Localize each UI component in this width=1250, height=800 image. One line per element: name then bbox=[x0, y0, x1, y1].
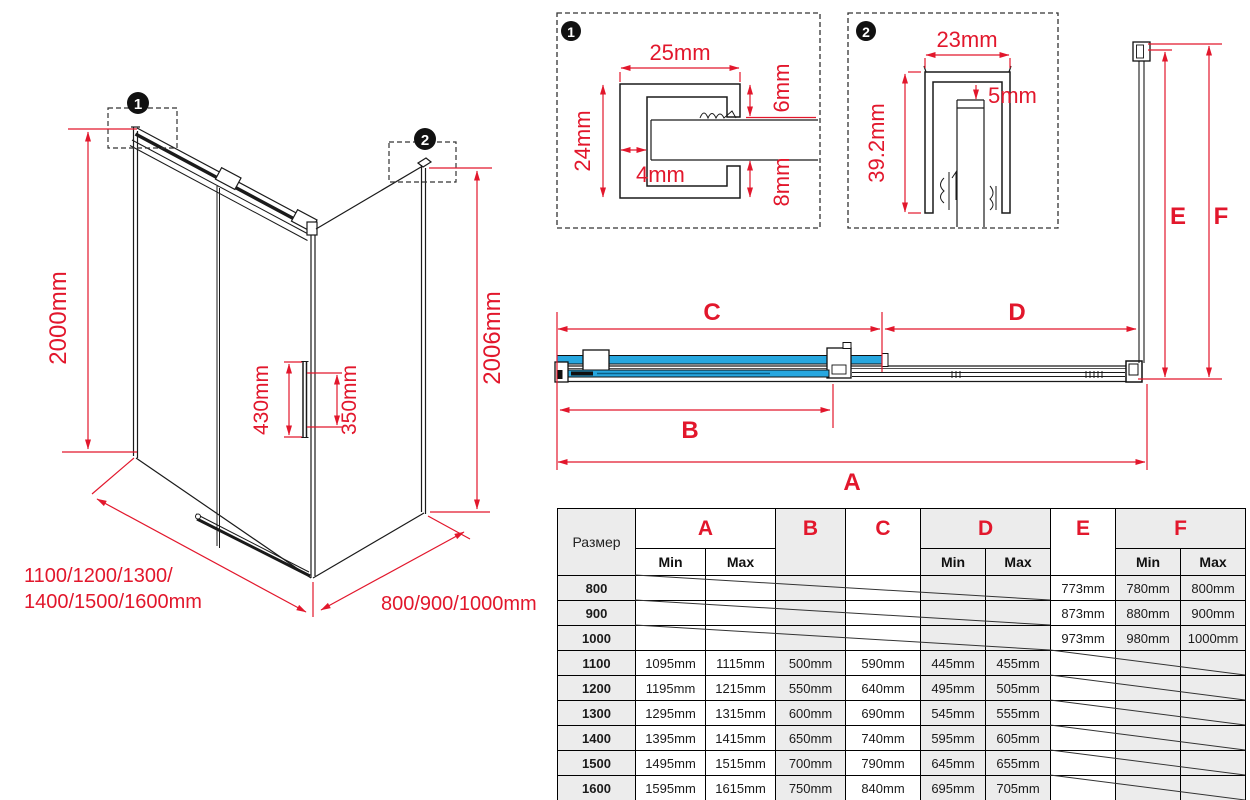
callout-2: 2 bbox=[389, 128, 456, 182]
header-f-max: Max bbox=[1181, 549, 1246, 576]
cell-f-max bbox=[1181, 751, 1246, 776]
door-end-cap bbox=[882, 354, 888, 367]
cell-a-max: 1315mm bbox=[706, 701, 776, 726]
row-size: 800 bbox=[558, 576, 636, 601]
row-size: 1600 bbox=[558, 776, 636, 800]
table-row: 1500 1495mm 1515mm 700mm 790mm 645mm 655… bbox=[558, 751, 1246, 776]
table-row: 1400 1395mm 1415mm 650mm 740mm 595mm 605… bbox=[558, 726, 1246, 751]
plan-dim-b: B bbox=[681, 417, 698, 444]
header-a-max: Max bbox=[706, 549, 776, 576]
cell-b bbox=[776, 601, 846, 626]
cell-a-min bbox=[636, 626, 706, 651]
spec-table: Размер A B C D E F Min Max Min Max Min M… bbox=[557, 508, 1246, 800]
cell-f-max: 800mm bbox=[1181, 576, 1246, 601]
plan-view: C D B A E F bbox=[555, 42, 1228, 496]
table-row: 1000 973mm 980mm 1000mm bbox=[558, 626, 1246, 651]
cell-d-max: 555mm bbox=[986, 701, 1051, 726]
header-d-min: Min bbox=[921, 549, 986, 576]
dim-handle-total: 430mm bbox=[250, 365, 273, 435]
plan-dim-e: E bbox=[1170, 203, 1186, 230]
dim-handle-holes: 350mm bbox=[338, 365, 361, 435]
header-col-a: A bbox=[636, 509, 776, 549]
detail-1-width: 25mm bbox=[649, 40, 710, 65]
cell-f-max: 1000mm bbox=[1181, 626, 1246, 651]
roller-block-left bbox=[583, 350, 609, 372]
shower-enclosure-spec-sheet: 1 2 2000mm 20 bbox=[0, 0, 1250, 800]
cell-e bbox=[1051, 651, 1116, 676]
cell-f-max bbox=[1181, 651, 1246, 676]
cell-b: 500mm bbox=[776, 651, 846, 676]
cell-b: 550mm bbox=[776, 676, 846, 701]
callout-1-number: 1 bbox=[134, 96, 142, 113]
cell-e: 773mm bbox=[1051, 576, 1116, 601]
roller-block-right bbox=[827, 348, 851, 378]
cell-a-min: 1195mm bbox=[636, 676, 706, 701]
cell-d-max: 655mm bbox=[986, 751, 1051, 776]
cell-a-max: 1115mm bbox=[706, 651, 776, 676]
plan-dim-f: F bbox=[1214, 203, 1229, 230]
cell-a-max: 1215mm bbox=[706, 676, 776, 701]
cell-e bbox=[1051, 726, 1116, 751]
callout-2-number: 2 bbox=[421, 132, 429, 149]
plan-dim-c: C bbox=[703, 299, 720, 326]
cell-b: 650mm bbox=[776, 726, 846, 751]
cell-d-min: 495mm bbox=[921, 676, 986, 701]
cell-f-max bbox=[1181, 676, 1246, 701]
row-size: 1100 bbox=[558, 651, 636, 676]
cell-e bbox=[1051, 701, 1116, 726]
cell-a-min bbox=[636, 601, 706, 626]
dim-width-line2: 1400/1500/1600mm bbox=[24, 591, 202, 613]
row-size: 1400 bbox=[558, 726, 636, 751]
cell-e: 873mm bbox=[1051, 601, 1116, 626]
cell-b bbox=[776, 626, 846, 651]
detail-2-height: 39.2mm bbox=[864, 103, 889, 182]
cell-a-min: 1395mm bbox=[636, 726, 706, 751]
cell-d-min bbox=[921, 626, 986, 651]
cell-a-max bbox=[706, 601, 776, 626]
table-row: 1200 1195mm 1215mm 550mm 640mm 495mm 505… bbox=[558, 676, 1246, 701]
dim-depth: 800/900/1000mm bbox=[381, 593, 537, 615]
cell-d-max: 705mm bbox=[986, 776, 1051, 800]
cell-a-min: 1295mm bbox=[636, 701, 706, 726]
cell-c: 840mm bbox=[846, 776, 921, 800]
detail-1-wall: 4mm bbox=[636, 162, 685, 187]
isometric-view bbox=[130, 127, 431, 578]
header-d-max: Max bbox=[986, 549, 1051, 576]
cell-e bbox=[1051, 751, 1116, 776]
cell-c: 790mm bbox=[846, 751, 921, 776]
row-size: 1200 bbox=[558, 676, 636, 701]
cell-c bbox=[846, 576, 921, 601]
cell-d-max: 605mm bbox=[986, 726, 1051, 751]
cell-d-min: 545mm bbox=[921, 701, 986, 726]
bottom-seal-right-icon bbox=[990, 186, 996, 210]
row-size: 900 bbox=[558, 601, 636, 626]
table-row: 1600 1595mm 1615mm 750mm 840mm 695mm 705… bbox=[558, 776, 1246, 800]
cell-a-max: 1515mm bbox=[706, 751, 776, 776]
plan-dim-d: D bbox=[1008, 299, 1025, 326]
cell-a-min bbox=[636, 576, 706, 601]
cell-b bbox=[776, 576, 846, 601]
cell-f-min bbox=[1116, 676, 1181, 701]
bottom-seal-left-icon bbox=[941, 172, 957, 210]
cell-a-min: 1095mm bbox=[636, 651, 706, 676]
cell-a-min: 1495mm bbox=[636, 751, 706, 776]
cell-b: 600mm bbox=[776, 701, 846, 726]
cell-d-max bbox=[986, 576, 1051, 601]
cell-c bbox=[846, 601, 921, 626]
cell-d-max: 505mm bbox=[986, 676, 1051, 701]
header-a-min: Min bbox=[636, 549, 706, 576]
cell-f-max: 900mm bbox=[1181, 601, 1246, 626]
dim-height-left: 2000mm bbox=[45, 271, 72, 364]
size-spec-table: Размер A B C D E F Min Max Min Max Min M… bbox=[557, 508, 1245, 800]
cell-a-max bbox=[706, 626, 776, 651]
cell-d-min: 445mm bbox=[921, 651, 986, 676]
cell-f-max bbox=[1181, 776, 1246, 800]
cell-b: 750mm bbox=[776, 776, 846, 800]
table-row: 900 873mm 880mm 900mm bbox=[558, 601, 1246, 626]
detail-1-box: 1 25mm 24mm 4mm bbox=[557, 13, 820, 228]
header-col-e: E bbox=[1051, 509, 1116, 576]
cell-c: 690mm bbox=[846, 701, 921, 726]
cell-d-min: 695mm bbox=[921, 776, 986, 800]
cell-c bbox=[846, 626, 921, 651]
cell-f-min bbox=[1116, 651, 1181, 676]
detail-1-height: 24mm bbox=[570, 110, 595, 171]
header-f-min: Min bbox=[1116, 549, 1181, 576]
cell-f-min bbox=[1116, 751, 1181, 776]
detail-1-number: 1 bbox=[567, 24, 575, 40]
cell-d-max bbox=[986, 601, 1051, 626]
cell-e: 973mm bbox=[1051, 626, 1116, 651]
cell-d-max bbox=[986, 626, 1051, 651]
cell-d-min bbox=[921, 601, 986, 626]
row-size: 1000 bbox=[558, 626, 636, 651]
dim-height-right: 2006mm bbox=[479, 291, 506, 384]
cell-f-max bbox=[1181, 726, 1246, 751]
table-row: 1300 1295mm 1315mm 600mm 690mm 545mm 555… bbox=[558, 701, 1246, 726]
cell-c: 740mm bbox=[846, 726, 921, 751]
cell-b: 700mm bbox=[776, 751, 846, 776]
header-col-d: D bbox=[921, 509, 1051, 549]
detail-1-top: 6mm bbox=[769, 64, 794, 113]
cell-f-min: 980mm bbox=[1116, 626, 1181, 651]
header-col-b: B bbox=[776, 509, 846, 576]
cell-a-min: 1595mm bbox=[636, 776, 706, 800]
cell-f-min: 880mm bbox=[1116, 601, 1181, 626]
header-size: Размер bbox=[558, 509, 636, 576]
cell-a-max bbox=[706, 576, 776, 601]
cell-d-min bbox=[921, 576, 986, 601]
detail-2-box: 2 23mm bbox=[848, 13, 1058, 228]
row-size: 1300 bbox=[558, 701, 636, 726]
detail-1-bottom: 8mm bbox=[769, 158, 794, 207]
cell-a-max: 1415mm bbox=[706, 726, 776, 751]
detail-2-width: 23mm bbox=[936, 27, 997, 52]
detail-2-gap: 5mm bbox=[988, 83, 1037, 108]
roller-knob bbox=[843, 343, 851, 349]
dim-width-line1: 1100/1200/1300/ bbox=[24, 565, 173, 587]
table-row: 800 773mm 780mm 800mm bbox=[558, 576, 1246, 601]
cell-f-min: 780mm bbox=[1116, 576, 1181, 601]
row-size: 1500 bbox=[558, 751, 636, 776]
cell-f-min bbox=[1116, 726, 1181, 751]
header-col-f: F bbox=[1116, 509, 1246, 549]
cell-f-min bbox=[1116, 776, 1181, 800]
cell-d-min: 645mm bbox=[921, 751, 986, 776]
cell-a-max: 1615mm bbox=[706, 776, 776, 800]
plan-dim-a: A bbox=[843, 469, 860, 496]
detail-2-number: 2 bbox=[862, 24, 870, 40]
cell-c: 640mm bbox=[846, 676, 921, 701]
cell-e bbox=[1051, 776, 1116, 800]
cell-f-max bbox=[1181, 701, 1246, 726]
cell-f-min bbox=[1116, 701, 1181, 726]
cell-e bbox=[1051, 676, 1116, 701]
cell-d-max: 455mm bbox=[986, 651, 1051, 676]
table-row: 1100 1095mm 1115mm 500mm 590mm 445mm 455… bbox=[558, 651, 1246, 676]
cell-d-min: 595mm bbox=[921, 726, 986, 751]
isometric-dimension-labels: 2000mm 2006mm 430mm 350mm 1100/1200/1300… bbox=[24, 271, 537, 615]
cell-c: 590mm bbox=[846, 651, 921, 676]
header-col-c: C bbox=[846, 509, 921, 576]
